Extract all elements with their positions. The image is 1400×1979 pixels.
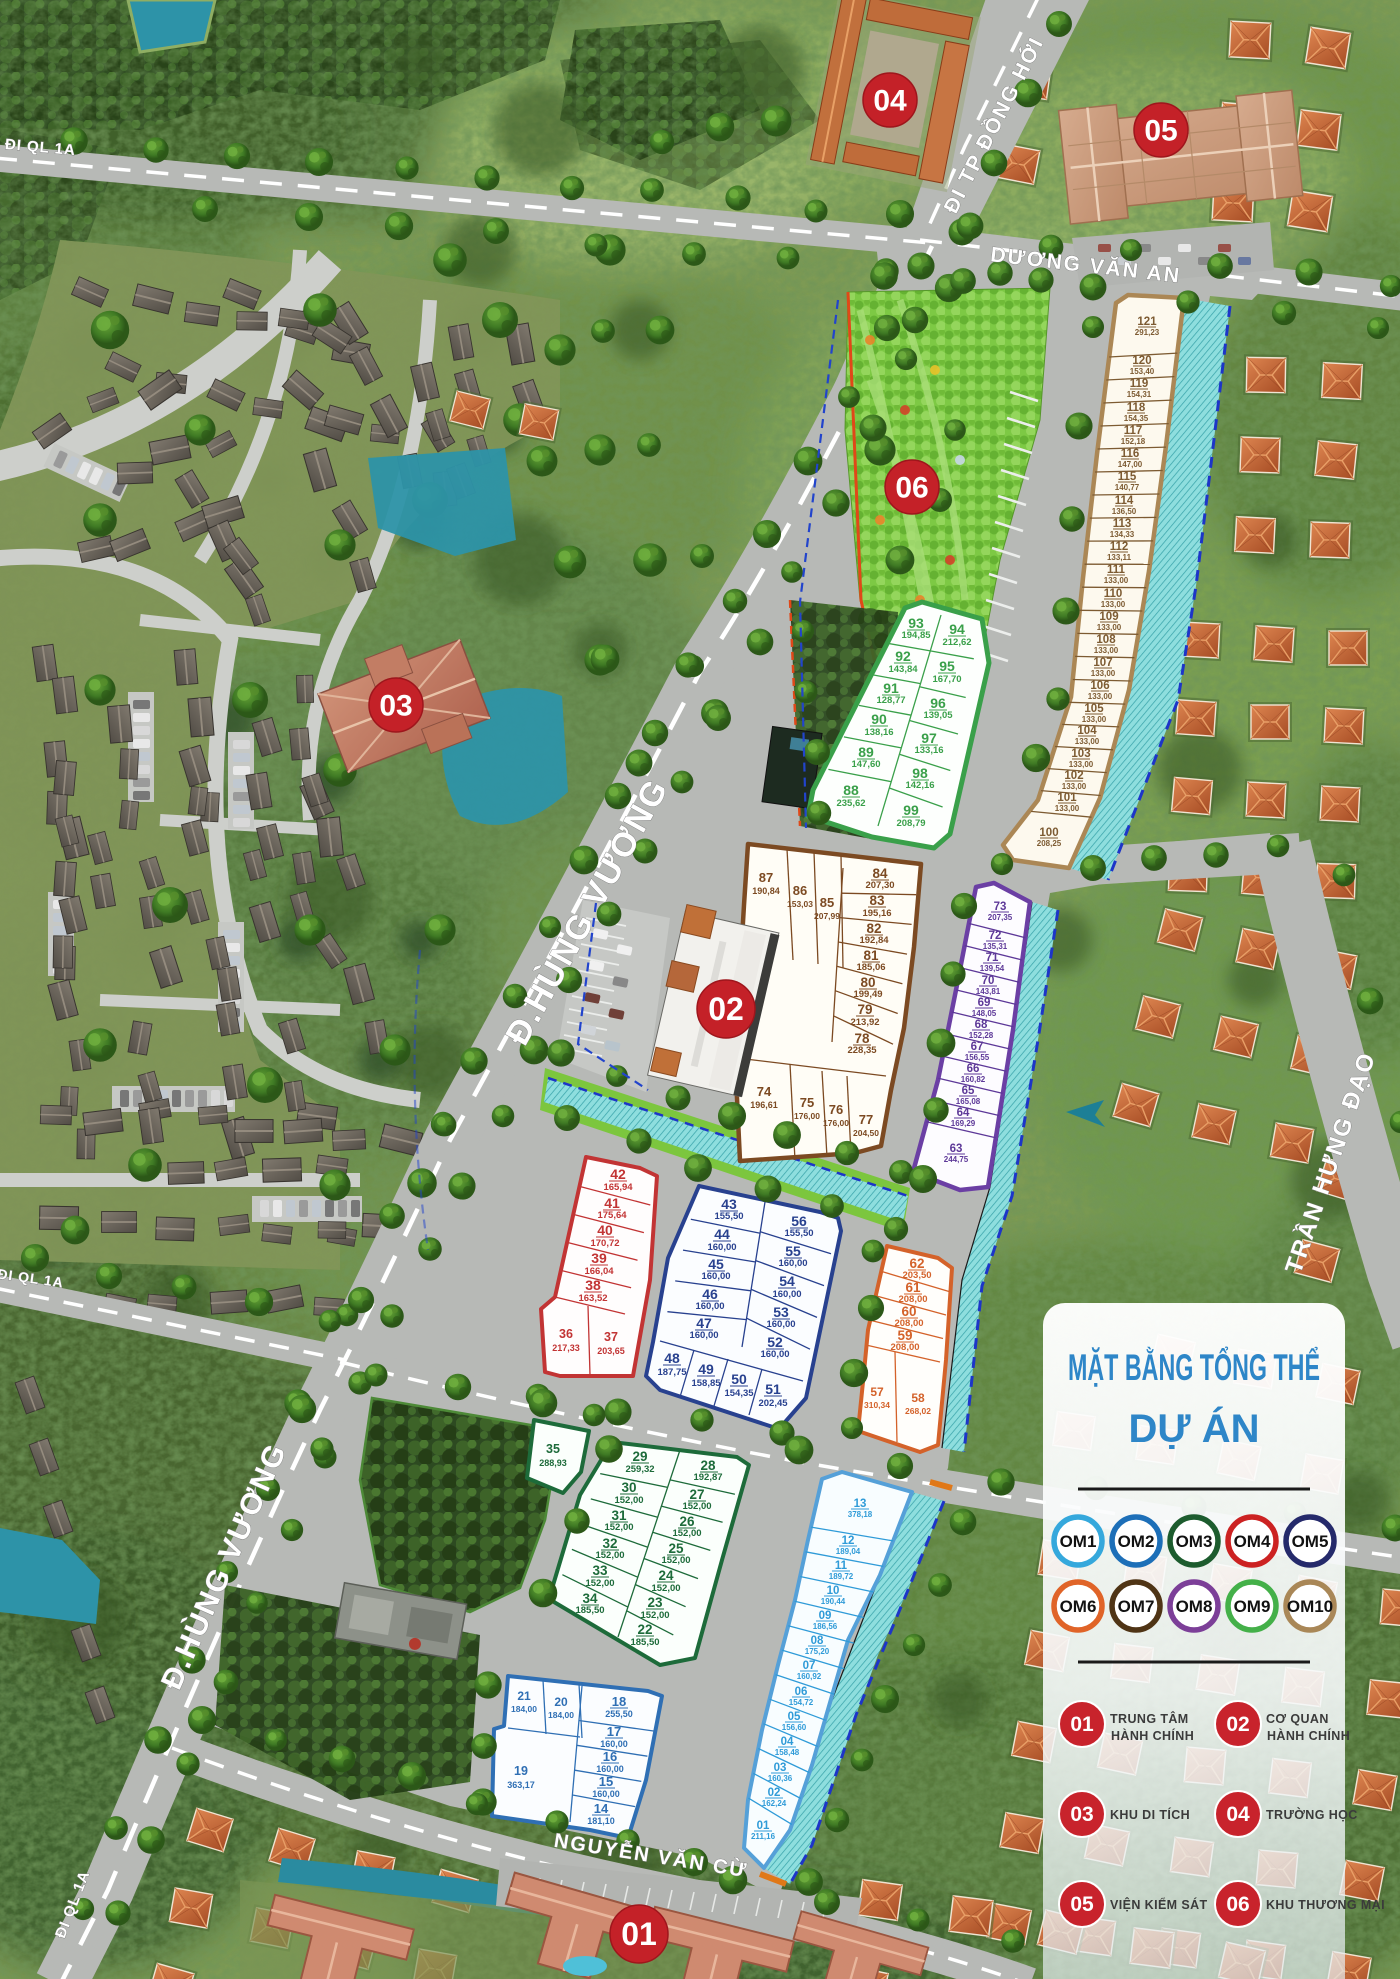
svg-text:07: 07 bbox=[803, 1660, 816, 1672]
svg-text:33: 33 bbox=[592, 1563, 608, 1578]
svg-text:133,00: 133,00 bbox=[1062, 782, 1087, 791]
svg-text:42: 42 bbox=[610, 1166, 626, 1182]
svg-text:57: 57 bbox=[870, 1385, 884, 1399]
svg-text:OM1: OM1 bbox=[1060, 1532, 1097, 1551]
svg-text:143,81: 143,81 bbox=[976, 987, 1001, 996]
svg-text:310,34: 310,34 bbox=[864, 1400, 890, 1410]
svg-text:04: 04 bbox=[781, 1736, 794, 1748]
svg-text:113: 113 bbox=[1113, 518, 1132, 530]
svg-text:363,17: 363,17 bbox=[507, 1780, 535, 1790]
svg-text:133,00: 133,00 bbox=[1097, 623, 1122, 632]
svg-text:154,72: 154,72 bbox=[789, 1698, 814, 1707]
svg-text:VIỆN KIỂM SÁT: VIỆN KIỂM SÁT bbox=[1110, 1897, 1208, 1912]
svg-text:27: 27 bbox=[689, 1487, 704, 1502]
svg-text:160,00: 160,00 bbox=[689, 1330, 718, 1341]
svg-text:160,36: 160,36 bbox=[768, 1774, 793, 1783]
svg-text:84: 84 bbox=[872, 866, 888, 881]
svg-text:160,00: 160,00 bbox=[695, 1301, 724, 1312]
svg-text:101: 101 bbox=[1057, 792, 1077, 804]
svg-text:190,84: 190,84 bbox=[752, 886, 780, 896]
svg-text:26: 26 bbox=[679, 1514, 695, 1529]
svg-text:133,00: 133,00 bbox=[1069, 760, 1094, 769]
svg-text:11: 11 bbox=[835, 1560, 848, 1572]
svg-text:140,77: 140,77 bbox=[1115, 483, 1140, 492]
svg-text:39: 39 bbox=[591, 1250, 607, 1266]
svg-text:165,94: 165,94 bbox=[603, 1182, 633, 1193]
svg-text:OM6: OM6 bbox=[1060, 1597, 1097, 1616]
svg-text:166,04: 166,04 bbox=[584, 1266, 614, 1277]
svg-text:99: 99 bbox=[903, 802, 919, 818]
svg-text:CƠ QUAN: CƠ QUAN bbox=[1266, 1712, 1329, 1726]
svg-text:217,33: 217,33 bbox=[552, 1343, 580, 1353]
svg-text:70: 70 bbox=[982, 975, 995, 987]
svg-text:104: 104 bbox=[1077, 725, 1097, 737]
svg-text:17: 17 bbox=[607, 1724, 621, 1739]
svg-text:60: 60 bbox=[901, 1304, 916, 1319]
svg-text:153,40: 153,40 bbox=[1130, 367, 1155, 376]
svg-text:158,48: 158,48 bbox=[775, 1748, 800, 1757]
svg-text:228,35: 228,35 bbox=[847, 1045, 877, 1056]
svg-text:05: 05 bbox=[788, 1711, 801, 1723]
svg-text:24: 24 bbox=[658, 1568, 674, 1583]
svg-text:148,05: 148,05 bbox=[972, 1009, 997, 1018]
svg-text:212,62: 212,62 bbox=[942, 637, 971, 648]
svg-text:01: 01 bbox=[621, 1916, 657, 1952]
svg-text:83: 83 bbox=[869, 893, 885, 908]
svg-text:192,87: 192,87 bbox=[693, 1472, 722, 1483]
svg-text:116: 116 bbox=[1121, 448, 1140, 460]
svg-text:378,18: 378,18 bbox=[848, 1510, 873, 1519]
svg-text:184,00: 184,00 bbox=[548, 1710, 574, 1720]
svg-text:95: 95 bbox=[939, 658, 955, 674]
svg-text:66: 66 bbox=[967, 1063, 980, 1075]
svg-text:120: 120 bbox=[1132, 355, 1151, 367]
svg-text:72: 72 bbox=[989, 930, 1002, 942]
svg-text:121: 121 bbox=[1137, 316, 1157, 328]
svg-text:147,00: 147,00 bbox=[1118, 460, 1143, 469]
svg-text:196,61: 196,61 bbox=[750, 1100, 778, 1110]
svg-text:90: 90 bbox=[871, 711, 887, 727]
svg-text:02: 02 bbox=[708, 991, 744, 1027]
svg-text:01: 01 bbox=[1070, 1713, 1094, 1736]
svg-text:44: 44 bbox=[714, 1226, 730, 1242]
svg-text:195,16: 195,16 bbox=[862, 908, 891, 919]
svg-text:76: 76 bbox=[829, 1102, 843, 1117]
svg-text:64: 64 bbox=[957, 1107, 970, 1119]
svg-text:154,35: 154,35 bbox=[1124, 414, 1149, 423]
svg-text:96: 96 bbox=[930, 695, 946, 711]
svg-text:152,28: 152,28 bbox=[969, 1031, 994, 1040]
svg-text:152,18: 152,18 bbox=[1121, 437, 1146, 446]
svg-text:134,33: 134,33 bbox=[1110, 530, 1135, 539]
svg-text:02: 02 bbox=[1226, 1713, 1249, 1736]
svg-text:29: 29 bbox=[632, 1449, 647, 1464]
svg-text:52: 52 bbox=[767, 1334, 783, 1350]
svg-text:82: 82 bbox=[866, 921, 881, 936]
svg-text:158,85: 158,85 bbox=[691, 1378, 721, 1389]
svg-text:160,92: 160,92 bbox=[797, 1672, 822, 1681]
svg-text:176,00: 176,00 bbox=[823, 1118, 849, 1128]
svg-text:06: 06 bbox=[1226, 1893, 1249, 1916]
svg-text:32: 32 bbox=[602, 1536, 617, 1551]
svg-text:133,00: 133,00 bbox=[1091, 669, 1116, 678]
svg-text:156,60: 156,60 bbox=[782, 1723, 807, 1732]
svg-text:203,65: 203,65 bbox=[597, 1346, 625, 1356]
svg-text:98: 98 bbox=[912, 765, 928, 781]
svg-text:43: 43 bbox=[721, 1196, 737, 1212]
svg-text:153,03: 153,03 bbox=[787, 899, 813, 909]
svg-text:OM10: OM10 bbox=[1287, 1597, 1333, 1616]
svg-text:175,64: 175,64 bbox=[597, 1210, 627, 1221]
svg-text:259,32: 259,32 bbox=[625, 1464, 654, 1475]
svg-text:207,99: 207,99 bbox=[814, 911, 840, 921]
svg-text:154,35: 154,35 bbox=[724, 1388, 754, 1399]
svg-text:91: 91 bbox=[883, 680, 899, 696]
svg-text:93: 93 bbox=[908, 615, 924, 631]
svg-text:28: 28 bbox=[700, 1458, 716, 1473]
svg-text:77: 77 bbox=[859, 1112, 873, 1127]
svg-text:105: 105 bbox=[1084, 703, 1104, 715]
svg-text:133,00: 133,00 bbox=[1101, 600, 1126, 609]
svg-text:268,02: 268,02 bbox=[905, 1406, 931, 1416]
svg-text:21: 21 bbox=[517, 1689, 531, 1703]
svg-text:185,06: 185,06 bbox=[856, 962, 885, 973]
svg-text:48: 48 bbox=[664, 1350, 680, 1366]
svg-text:152,00: 152,00 bbox=[672, 1528, 701, 1539]
svg-text:207,30: 207,30 bbox=[865, 880, 894, 891]
svg-text:81: 81 bbox=[863, 948, 879, 963]
svg-text:133,00: 133,00 bbox=[1075, 737, 1100, 746]
svg-text:OM4: OM4 bbox=[1234, 1532, 1271, 1551]
svg-text:133,00: 133,00 bbox=[1094, 646, 1119, 655]
svg-text:175,20: 175,20 bbox=[805, 1647, 830, 1656]
svg-text:112: 112 bbox=[1110, 541, 1129, 553]
svg-text:OM2: OM2 bbox=[1118, 1532, 1155, 1551]
svg-text:92: 92 bbox=[895, 648, 911, 664]
svg-text:103: 103 bbox=[1071, 748, 1090, 760]
svg-text:50: 50 bbox=[731, 1371, 747, 1387]
svg-text:36: 36 bbox=[559, 1327, 573, 1341]
svg-text:80: 80 bbox=[860, 975, 875, 990]
svg-text:HÀNH CHÍNH: HÀNH CHÍNH bbox=[1267, 1728, 1350, 1743]
svg-text:KHU THƯƠNG MẠI: KHU THƯƠNG MẠI bbox=[1266, 1898, 1385, 1912]
svg-text:74: 74 bbox=[757, 1084, 772, 1099]
svg-text:207,35: 207,35 bbox=[988, 913, 1013, 922]
svg-text:160,00: 160,00 bbox=[701, 1271, 730, 1282]
svg-text:211,16: 211,16 bbox=[751, 1832, 776, 1841]
svg-text:133,16: 133,16 bbox=[914, 745, 943, 756]
svg-text:108: 108 bbox=[1096, 634, 1116, 646]
svg-text:115: 115 bbox=[1118, 471, 1137, 483]
svg-text:56: 56 bbox=[791, 1213, 807, 1229]
svg-text:HÀNH CHÍNH: HÀNH CHÍNH bbox=[1111, 1728, 1194, 1743]
svg-text:190,44: 190,44 bbox=[821, 1597, 846, 1606]
svg-text:184,00: 184,00 bbox=[511, 1704, 537, 1714]
svg-text:MẶT BẰNG TỔNG THỂ: MẶT BẰNG TỔNG THỂ bbox=[1068, 1345, 1320, 1388]
svg-text:58: 58 bbox=[911, 1391, 925, 1405]
svg-text:152,00: 152,00 bbox=[614, 1495, 643, 1506]
svg-text:47: 47 bbox=[696, 1315, 712, 1331]
svg-text:25: 25 bbox=[668, 1541, 684, 1556]
svg-text:65: 65 bbox=[962, 1085, 975, 1097]
svg-text:255,50: 255,50 bbox=[605, 1709, 633, 1719]
svg-text:102: 102 bbox=[1064, 770, 1083, 782]
svg-text:100: 100 bbox=[1039, 827, 1058, 839]
svg-text:160,00: 160,00 bbox=[600, 1739, 628, 1749]
svg-text:05: 05 bbox=[1144, 114, 1177, 147]
svg-text:OM3: OM3 bbox=[1176, 1532, 1213, 1551]
svg-text:TRUNG TÂM: TRUNG TÂM bbox=[1110, 1711, 1189, 1726]
svg-text:OM8: OM8 bbox=[1176, 1597, 1213, 1616]
svg-text:119: 119 bbox=[1130, 378, 1149, 390]
svg-text:40: 40 bbox=[597, 1222, 613, 1238]
svg-text:169,29: 169,29 bbox=[951, 1119, 976, 1128]
svg-text:46: 46 bbox=[702, 1286, 718, 1302]
svg-text:133,00: 133,00 bbox=[1104, 576, 1129, 585]
svg-text:160,00: 160,00 bbox=[766, 1319, 795, 1330]
svg-text:160,82: 160,82 bbox=[961, 1075, 986, 1084]
svg-text:133,11: 133,11 bbox=[1107, 553, 1132, 562]
svg-text:152,00: 152,00 bbox=[640, 1610, 669, 1621]
svg-text:176,00: 176,00 bbox=[794, 1111, 820, 1121]
svg-text:30: 30 bbox=[621, 1480, 636, 1495]
svg-text:DỰ ÁN: DỰ ÁN bbox=[1129, 1406, 1260, 1451]
svg-text:155,50: 155,50 bbox=[714, 1211, 743, 1222]
svg-text:04: 04 bbox=[873, 84, 907, 117]
svg-text:128,77: 128,77 bbox=[876, 695, 905, 706]
svg-text:87: 87 bbox=[759, 870, 773, 885]
svg-text:163,52: 163,52 bbox=[578, 1293, 607, 1304]
svg-text:49: 49 bbox=[698, 1361, 714, 1377]
svg-text:94: 94 bbox=[949, 621, 965, 637]
svg-text:133,00: 133,00 bbox=[1055, 804, 1080, 813]
svg-text:86: 86 bbox=[793, 883, 807, 898]
svg-text:154,31: 154,31 bbox=[1127, 390, 1152, 399]
svg-text:135,31: 135,31 bbox=[983, 942, 1008, 951]
svg-text:18: 18 bbox=[612, 1694, 626, 1709]
svg-text:55: 55 bbox=[785, 1243, 801, 1259]
svg-text:117: 117 bbox=[1124, 425, 1143, 437]
svg-text:41: 41 bbox=[604, 1195, 620, 1211]
svg-text:189,04: 189,04 bbox=[836, 1547, 861, 1556]
svg-text:187,75: 187,75 bbox=[657, 1367, 687, 1378]
svg-text:35: 35 bbox=[546, 1442, 560, 1456]
svg-text:62: 62 bbox=[909, 1256, 924, 1271]
svg-text:37: 37 bbox=[604, 1330, 618, 1344]
svg-text:185,50: 185,50 bbox=[630, 1637, 659, 1648]
svg-text:186,56: 186,56 bbox=[813, 1622, 838, 1631]
svg-text:69: 69 bbox=[978, 997, 991, 1009]
svg-text:138,16: 138,16 bbox=[864, 727, 893, 738]
svg-text:01: 01 bbox=[757, 1820, 770, 1832]
svg-text:53: 53 bbox=[773, 1304, 789, 1320]
svg-text:291,23: 291,23 bbox=[1135, 328, 1160, 337]
svg-text:160,00: 160,00 bbox=[596, 1764, 624, 1774]
svg-text:152,00: 152,00 bbox=[682, 1501, 711, 1512]
svg-text:05: 05 bbox=[1070, 1893, 1094, 1916]
svg-text:12: 12 bbox=[842, 1535, 855, 1547]
svg-text:88: 88 bbox=[843, 782, 859, 798]
svg-text:235,62: 235,62 bbox=[836, 798, 865, 809]
svg-text:189,72: 189,72 bbox=[829, 1572, 854, 1581]
svg-text:152,00: 152,00 bbox=[585, 1578, 614, 1589]
svg-text:OM5: OM5 bbox=[1292, 1532, 1329, 1551]
svg-text:89: 89 bbox=[858, 744, 874, 760]
svg-text:160,00: 160,00 bbox=[772, 1289, 801, 1300]
svg-text:15: 15 bbox=[599, 1774, 613, 1789]
svg-text:13: 13 bbox=[854, 1498, 867, 1510]
svg-text:152,00: 152,00 bbox=[595, 1550, 624, 1561]
svg-text:85: 85 bbox=[820, 895, 834, 910]
svg-text:114: 114 bbox=[1115, 495, 1134, 507]
svg-text:152,00: 152,00 bbox=[604, 1522, 633, 1533]
svg-text:51: 51 bbox=[765, 1381, 781, 1397]
svg-text:79: 79 bbox=[857, 1002, 872, 1017]
svg-text:TRƯỜNG HỌC: TRƯỜNG HỌC bbox=[1266, 1807, 1358, 1822]
svg-text:02: 02 bbox=[768, 1787, 781, 1799]
svg-text:61: 61 bbox=[905, 1280, 921, 1295]
svg-text:06: 06 bbox=[795, 1686, 808, 1698]
svg-text:160,00: 160,00 bbox=[760, 1349, 789, 1360]
svg-text:19: 19 bbox=[514, 1764, 528, 1778]
svg-text:118: 118 bbox=[1127, 402, 1146, 414]
svg-text:160,00: 160,00 bbox=[778, 1258, 807, 1269]
svg-text:185,50: 185,50 bbox=[575, 1605, 604, 1616]
svg-text:08: 08 bbox=[811, 1635, 824, 1647]
svg-text:73: 73 bbox=[994, 901, 1007, 913]
svg-text:160,00: 160,00 bbox=[592, 1789, 620, 1799]
svg-text:156,55: 156,55 bbox=[965, 1053, 990, 1062]
svg-text:204,50: 204,50 bbox=[853, 1128, 879, 1138]
svg-text:288,93: 288,93 bbox=[539, 1458, 567, 1468]
svg-text:03: 03 bbox=[1070, 1803, 1093, 1826]
svg-text:14: 14 bbox=[594, 1801, 609, 1816]
svg-text:152,00: 152,00 bbox=[661, 1555, 690, 1566]
svg-text:63: 63 bbox=[950, 1143, 963, 1155]
svg-text:20: 20 bbox=[554, 1695, 568, 1709]
svg-text:06: 06 bbox=[895, 471, 928, 504]
svg-text:03: 03 bbox=[774, 1762, 787, 1774]
svg-text:181,10: 181,10 bbox=[587, 1816, 615, 1826]
svg-text:111: 111 bbox=[1107, 564, 1126, 576]
svg-text:109: 109 bbox=[1099, 611, 1118, 623]
svg-text:03: 03 bbox=[379, 689, 412, 722]
svg-text:34: 34 bbox=[582, 1591, 598, 1606]
svg-text:165,08: 165,08 bbox=[956, 1097, 981, 1106]
svg-text:192,84: 192,84 bbox=[859, 935, 889, 946]
svg-text:67: 67 bbox=[971, 1041, 984, 1053]
svg-text:97: 97 bbox=[921, 730, 937, 746]
svg-text:22: 22 bbox=[637, 1622, 652, 1637]
svg-text:155,50: 155,50 bbox=[784, 1228, 813, 1239]
svg-text:OM7: OM7 bbox=[1118, 1597, 1155, 1616]
svg-text:107: 107 bbox=[1093, 657, 1112, 669]
svg-text:142,16: 142,16 bbox=[905, 780, 934, 791]
svg-text:170,72: 170,72 bbox=[590, 1238, 619, 1249]
svg-text:31: 31 bbox=[611, 1508, 627, 1523]
svg-text:162,24: 162,24 bbox=[762, 1799, 787, 1808]
svg-text:16: 16 bbox=[603, 1749, 617, 1764]
svg-text:10: 10 bbox=[827, 1585, 840, 1597]
svg-text:139,54: 139,54 bbox=[980, 964, 1005, 973]
svg-text:KHU DI TÍCH: KHU DI TÍCH bbox=[1110, 1807, 1190, 1822]
svg-text:78: 78 bbox=[854, 1031, 870, 1046]
svg-text:208,79: 208,79 bbox=[896, 818, 925, 829]
svg-text:136,50: 136,50 bbox=[1112, 507, 1137, 516]
svg-text:143,84: 143,84 bbox=[888, 664, 918, 675]
svg-text:152,00: 152,00 bbox=[651, 1583, 680, 1594]
svg-text:OM9: OM9 bbox=[1234, 1597, 1271, 1616]
svg-text:194,85: 194,85 bbox=[901, 630, 931, 641]
svg-text:106: 106 bbox=[1090, 680, 1109, 692]
svg-text:04: 04 bbox=[1226, 1803, 1250, 1826]
svg-text:54: 54 bbox=[779, 1273, 795, 1289]
svg-text:167,70: 167,70 bbox=[932, 674, 961, 685]
svg-text:45: 45 bbox=[708, 1256, 724, 1272]
svg-text:09: 09 bbox=[819, 1610, 832, 1622]
svg-text:75: 75 bbox=[800, 1095, 814, 1110]
svg-text:133,00: 133,00 bbox=[1082, 715, 1107, 724]
svg-text:23: 23 bbox=[647, 1595, 663, 1610]
svg-text:202,45: 202,45 bbox=[758, 1398, 788, 1409]
svg-text:147,60: 147,60 bbox=[851, 759, 880, 770]
svg-text:208,25: 208,25 bbox=[1037, 839, 1062, 848]
svg-text:244,75: 244,75 bbox=[944, 1155, 969, 1164]
svg-text:160,00: 160,00 bbox=[707, 1242, 736, 1253]
svg-text:139,05: 139,05 bbox=[923, 710, 953, 721]
svg-text:68: 68 bbox=[975, 1019, 988, 1031]
svg-text:110: 110 bbox=[1104, 588, 1123, 600]
svg-text:71: 71 bbox=[986, 952, 999, 964]
svg-text:133,00: 133,00 bbox=[1088, 692, 1113, 701]
svg-text:59: 59 bbox=[897, 1328, 912, 1343]
svg-text:38: 38 bbox=[585, 1277, 601, 1293]
